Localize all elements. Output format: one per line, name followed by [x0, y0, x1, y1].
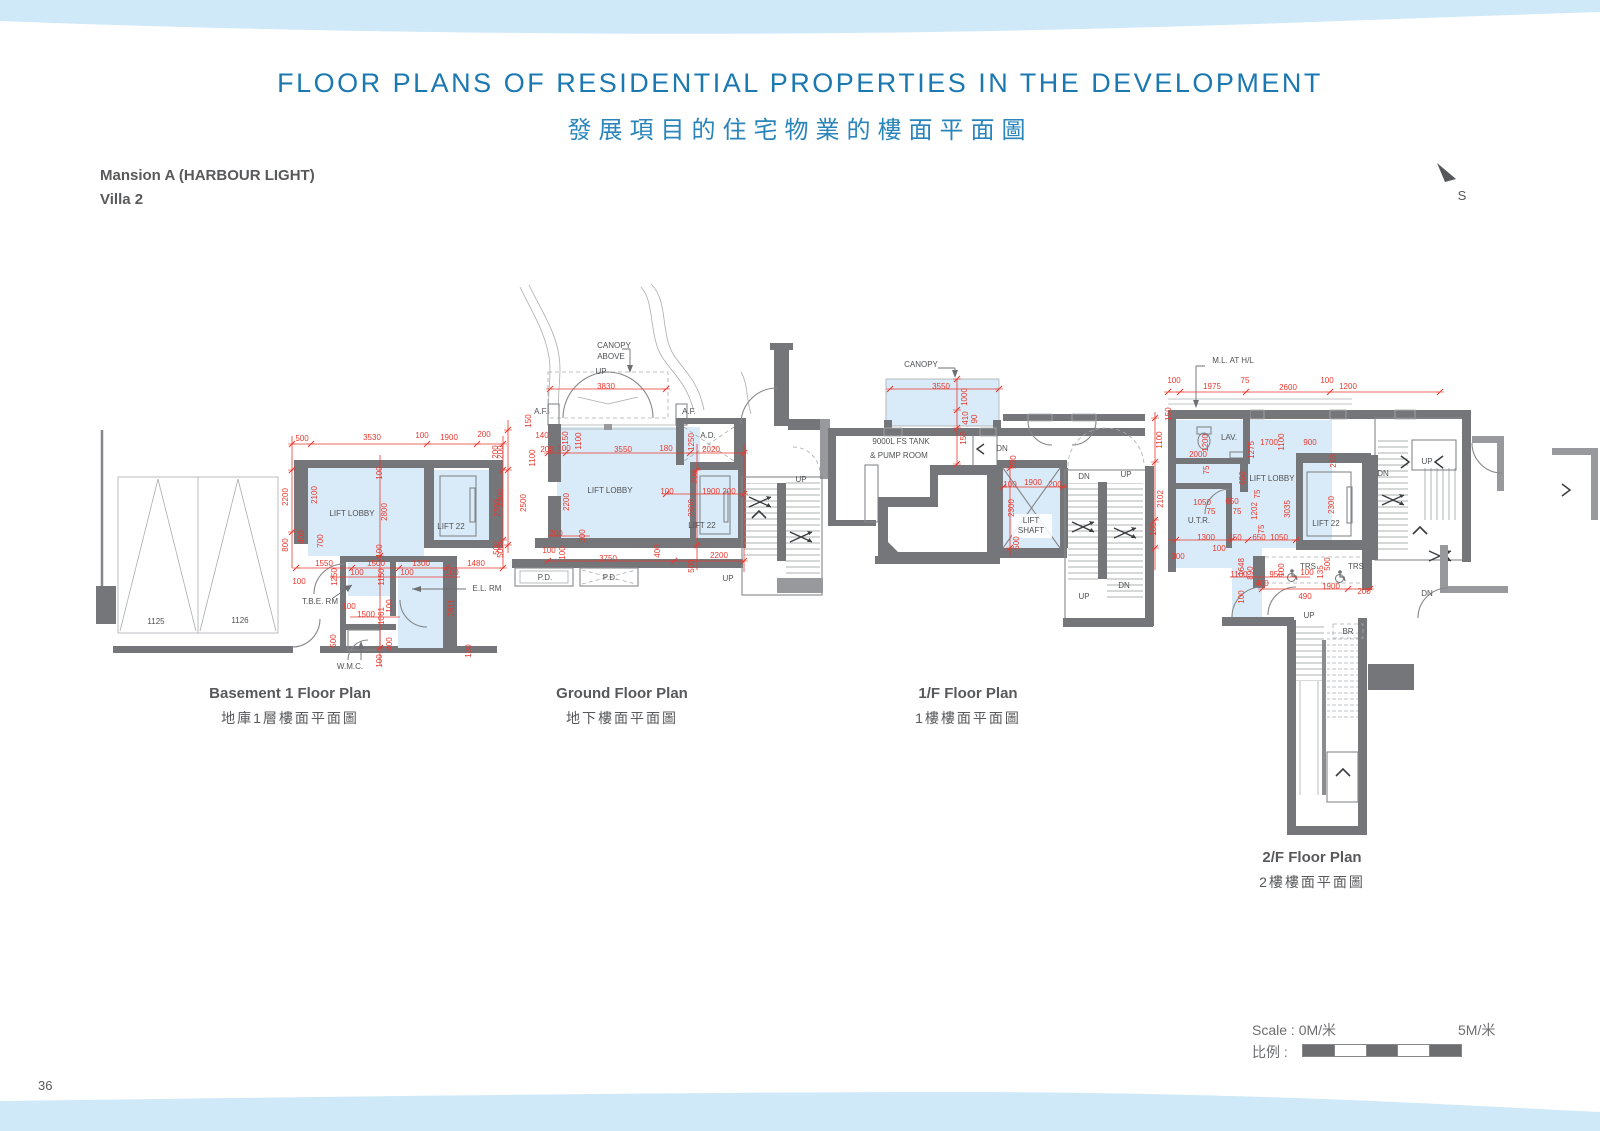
- room-label: E.L. RM: [473, 584, 502, 593]
- caption-second-floor: 2/F Floor Plan 2樓樓面平面圖: [1259, 849, 1365, 892]
- dimension-label: 1500: [367, 559, 385, 568]
- room-label: UP: [795, 475, 806, 484]
- room-label: UP: [1078, 592, 1089, 601]
- dimension-label: 75: [1241, 376, 1250, 385]
- scale-max-label: 5M/米: [1458, 1020, 1495, 1040]
- room-label: UP: [595, 367, 606, 376]
- room-label: TRS: [1348, 562, 1364, 571]
- room-label: CANOPY: [904, 360, 938, 369]
- room-label: UP: [1303, 611, 1314, 620]
- dimension-label: 75: [1253, 489, 1262, 498]
- room-label: A.F.: [534, 407, 548, 416]
- caption-ground-floor-en: Ground Floor Plan: [556, 685, 688, 702]
- room-label: LIFT LOBBY: [329, 509, 375, 518]
- dimension-label: 100: [375, 654, 384, 668]
- dimension-label: 75: [1202, 465, 1211, 474]
- dimension-label: 100: [415, 431, 429, 440]
- dimension-label: 100: [660, 487, 674, 496]
- dimension-label: 75: [1207, 507, 1216, 516]
- room-label: 1126: [231, 616, 249, 625]
- room-label: UP: [1120, 470, 1131, 479]
- page-number: 36: [38, 1078, 52, 1093]
- dimension-label: 1300: [1197, 533, 1215, 542]
- dimension-label: 800: [281, 538, 290, 552]
- room-label: U.T.R.: [1188, 516, 1210, 525]
- scale-legend: Scale : 0M/米 5M/米 比例 :: [1252, 1020, 1512, 1058]
- dimension-label: 1202: [1250, 502, 1259, 520]
- dimension-label: 200: [549, 529, 563, 538]
- dimension-label: 150: [524, 414, 533, 428]
- dimension-label: 200: [477, 430, 491, 439]
- dimension-label: 100: [400, 568, 414, 577]
- room-label: SHAFT: [1018, 526, 1044, 535]
- dimension-label: 1480: [467, 559, 485, 568]
- dimension-label: 3530: [363, 433, 381, 442]
- dimension-label: 100: [558, 546, 567, 560]
- caption-first-floor: 1/F Floor Plan 1樓樓面平面圖: [915, 685, 1021, 728]
- dimension-label: 2200: [281, 488, 290, 506]
- dimension-label: 2811: [447, 599, 456, 617]
- dimension-label: 400: [297, 530, 306, 544]
- basement1-floor-plan-drawing: [96, 430, 507, 665]
- room-label: UP: [722, 574, 733, 583]
- dimension-label: 200: [690, 470, 699, 484]
- dimension-label: 75: [1257, 524, 1266, 533]
- room-label: & PUMP ROOM: [870, 451, 928, 460]
- dimension-label: 150: [959, 431, 968, 445]
- caption-basement1: Basement 1 Floor Plan 地庫1層樓面平面圖: [209, 685, 371, 728]
- room-label: LIFT LOBBY: [587, 486, 633, 495]
- dimension-label: 1150: [377, 568, 386, 586]
- dimension-label: 210: [1329, 454, 1338, 468]
- dimension-label: 1100: [1277, 433, 1286, 451]
- dimension-label: 900: [1303, 438, 1317, 447]
- dimension-label: 100: [542, 546, 556, 555]
- dimension-label: 2020: [702, 445, 720, 454]
- room-label: T.B.E. RM: [302, 597, 338, 606]
- dimension-label: 2102: [1156, 490, 1165, 508]
- room-label: P.D.: [538, 573, 553, 582]
- room-label: LIFT 22: [688, 521, 716, 530]
- caption-first-floor-en: 1/F Floor Plan: [915, 685, 1021, 702]
- dimension-label: 2600: [1279, 383, 1297, 392]
- dimension-label: 100: [1237, 590, 1246, 604]
- dimension-label: 1000: [960, 388, 969, 406]
- floor-plans-canvas: .w{fill:#74767a;} .w2{fill:#97999c;} .ln…: [0, 0, 1600, 1131]
- dimension-label: 300: [578, 529, 587, 543]
- dimension-label: 400: [653, 544, 662, 558]
- dimension-label: 200: [1009, 455, 1018, 469]
- dimension-label: 1050: [1193, 498, 1211, 507]
- room-label: A.D.: [700, 431, 716, 440]
- dimension-label: 500: [1012, 536, 1021, 550]
- dimension-label: 500: [492, 541, 501, 555]
- dimension-label: 100: [1212, 544, 1226, 553]
- room-label: LIFT 22: [437, 522, 465, 531]
- room-label: W.M.C.: [337, 662, 363, 671]
- dimension-label: 100: [385, 599, 394, 613]
- room-label: ABOVE: [597, 352, 625, 361]
- dimension-label: 2200: [562, 493, 571, 511]
- dimension-label: 300: [1171, 552, 1185, 561]
- dimension-label: 450: [1228, 533, 1242, 542]
- dimension-label: 200: [1357, 587, 1371, 596]
- dimension-label: 650: [1225, 497, 1239, 506]
- dimension-label: 150: [561, 431, 570, 445]
- dimension-label: 90: [970, 414, 979, 423]
- dimension-label: 2100: [310, 486, 319, 504]
- dimension-label: 1550: [315, 559, 333, 568]
- dimension-label: 100: [557, 444, 571, 453]
- room-label: 9000L FS TANK: [872, 437, 930, 446]
- dimension-label: 500: [295, 434, 309, 443]
- dimension-label: 2500: [519, 494, 528, 512]
- dimension-label: 500: [687, 559, 696, 573]
- room-label: DN: [1118, 581, 1130, 590]
- room-label: 1125: [147, 617, 165, 626]
- dimension-label: 200: [722, 487, 736, 496]
- dimension-label: 1250: [330, 568, 339, 586]
- dimension-label: 100: [375, 466, 384, 480]
- dimension-label: 100: [292, 577, 306, 586]
- dimension-label: 650: [1238, 471, 1247, 485]
- dimension-label: 100: [342, 602, 356, 611]
- dimension-label: 100: [350, 568, 364, 577]
- scale-chinese-label: 比例 :: [1252, 1042, 1288, 1062]
- dimension-label: 140: [535, 431, 549, 440]
- dimension-label: 1700: [1260, 438, 1278, 447]
- caption-second-floor-en: 2/F Floor Plan: [1259, 849, 1365, 866]
- caption-second-floor-zh: 2樓樓面平面圖: [1259, 872, 1365, 892]
- room-label: M.L. AT H/L: [1212, 356, 1254, 365]
- room-label: A.F.: [682, 407, 696, 416]
- dimension-label: 100: [1149, 522, 1158, 536]
- dimension-label: 100: [375, 544, 384, 558]
- dimension-label: 2000: [1189, 450, 1207, 459]
- dimension-label: 3830: [597, 382, 615, 391]
- dimension-label: 1900: [1024, 478, 1042, 487]
- dimension-label: 1200: [1339, 382, 1357, 391]
- room-label: UP: [1421, 457, 1432, 466]
- dimension-label: 100: [1003, 480, 1017, 489]
- dimension-label: 100: [464, 644, 473, 658]
- dimension-label: 2300: [1007, 499, 1016, 517]
- dimension-label: 100: [445, 568, 459, 577]
- dimension-label: 1300: [412, 559, 430, 568]
- scale-bar: [1302, 1044, 1462, 1057]
- dimension-label: 200: [491, 445, 500, 459]
- caption-first-floor-zh: 1樓樓面平面圖: [915, 708, 1021, 728]
- room-label: CANOPY: [597, 341, 631, 350]
- dimension-label: 500: [1323, 557, 1332, 571]
- room-label: DN: [1377, 469, 1389, 478]
- dimension-label: 1975: [1203, 382, 1221, 391]
- dimension-label: 1100: [1155, 431, 1164, 449]
- dimension-label: 1050: [1270, 533, 1288, 542]
- dimension-label: 3550: [932, 382, 950, 391]
- dimension-label: 410: [961, 411, 970, 425]
- room-label: BR: [1342, 627, 1353, 636]
- dimension-label: 100: [1320, 376, 1334, 385]
- room-label: P.D.: [603, 573, 618, 582]
- dimension-label: 3035: [1283, 500, 1292, 518]
- dimension-label: 100: [1300, 568, 1314, 577]
- brochure-page: { "header": { "title_en": "FLOOR PLANS O…: [0, 0, 1600, 1131]
- dimension-label: 200: [1048, 480, 1062, 489]
- scale-min-label: Scale : 0M/米: [1252, 1020, 1336, 1040]
- dimension-label: 3550: [614, 445, 632, 454]
- room-label: LIFT: [1023, 516, 1040, 525]
- wheelchair-icon: [1336, 570, 1346, 582]
- dimension-label: 1500: [357, 610, 375, 619]
- dimension-label: 400: [1255, 579, 1269, 588]
- dimension-label: 1250: [687, 433, 696, 451]
- room-label: LIFT LOBBY: [1249, 474, 1295, 483]
- dimension-label: 890: [1246, 566, 1255, 580]
- dimension-label: 950: [1269, 570, 1283, 579]
- dimension-label: 2200: [710, 551, 728, 560]
- dimension-label: 490: [1298, 592, 1312, 601]
- wheelchair-icon: [1288, 569, 1298, 581]
- dimension-label: 2300: [493, 499, 502, 517]
- caption-ground-floor-zh: 地下樓面平面圖: [556, 708, 688, 728]
- dimension-label: 180: [659, 444, 673, 453]
- dimension-label: 2300: [1327, 496, 1336, 514]
- dimension-label: 400: [385, 637, 394, 651]
- dimension-label: 2800: [380, 503, 389, 521]
- second-floor-plan-drawing: [1151, 366, 1598, 835]
- room-label: DN: [1078, 472, 1090, 481]
- dimension-label: 500: [329, 634, 338, 648]
- dimension-label: 200: [540, 445, 554, 454]
- first-floor-plan-drawing: [828, 368, 1154, 627]
- room-label: LIFT 22: [1312, 519, 1340, 528]
- caption-basement1-zh: 地庫1層樓面平面圖: [209, 708, 371, 728]
- dimension-label: 1275: [1247, 441, 1256, 459]
- dimension-label: 1100: [528, 449, 537, 467]
- dimension-label: 1900: [1322, 582, 1340, 591]
- dimension-label: 1900: [440, 433, 458, 442]
- dimension-label: 2300: [687, 499, 696, 517]
- dimension-label: 700: [316, 534, 325, 548]
- dimension-label: 3750: [599, 554, 617, 563]
- room-label: DN: [996, 444, 1008, 453]
- dimension-label: 1100: [574, 432, 583, 450]
- dimension-label: 1900: [702, 487, 720, 496]
- dimension-label: 100: [1167, 376, 1181, 385]
- caption-ground-floor: Ground Floor Plan 地下樓面平面圖: [556, 685, 688, 728]
- caption-basement1-en: Basement 1 Floor Plan: [209, 685, 371, 702]
- dimension-label: 75: [1233, 507, 1242, 516]
- dimension-label: 150: [1164, 407, 1173, 421]
- room-label: LAV.: [1221, 433, 1237, 442]
- room-label: DN: [1421, 589, 1433, 598]
